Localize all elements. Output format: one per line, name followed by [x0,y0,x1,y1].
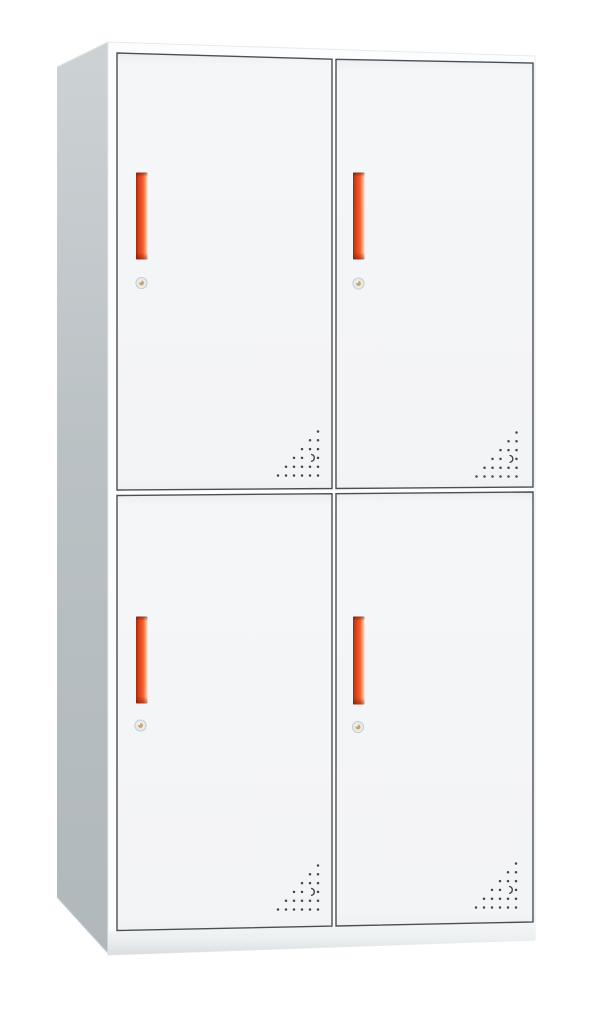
vent-dot [285,908,288,911]
vent-dot [301,899,304,902]
vent-dot [515,862,518,865]
vent-dot [507,475,510,478]
product-image [0,0,605,1009]
vent-dot [483,475,486,478]
vent-dot [507,897,510,900]
vent-dot [317,899,320,902]
vent-dot [309,882,312,885]
vent-dot [515,449,518,452]
vent-dot [499,880,502,883]
vent-dot [317,873,320,876]
vent-dot [317,474,320,477]
vent-dot [277,474,280,477]
vent-dot [507,449,510,452]
vent-dot [317,457,320,460]
vent-dot [515,871,518,874]
vent-dot [491,906,494,909]
vent-dot [483,466,486,469]
vent-dot [491,889,494,892]
vent-dot [499,906,502,909]
vent-dot [507,906,510,909]
vent-dot [309,439,312,442]
door-lower-left [117,494,332,931]
vent-dot [475,475,478,478]
keyhole-upper-left [136,277,147,288]
vent-dot [515,475,518,478]
vent-dot [507,440,510,443]
vent-dot [317,465,320,468]
keyhole-upper-right [353,278,364,289]
vent-dot [515,431,518,434]
vent-dot [293,474,296,477]
keyhole-lower-right [352,721,363,732]
vent-dot [293,899,296,902]
vent-dot [293,891,296,894]
vent-dot [301,457,304,460]
vent-dot [499,897,502,900]
vent-dot [301,465,304,468]
vent-dot [309,908,312,911]
handle-upper-left [136,173,148,260]
vent-dot [515,458,518,461]
handle-upper-right [353,173,365,260]
vent-dot [507,466,510,469]
vent-dot [499,458,502,461]
vent-dot [285,899,288,902]
vent-dot [309,448,312,451]
vent-dot [499,449,502,452]
keyhole-lower-left [135,720,146,731]
vent-dot [317,882,320,885]
vent-dot [491,466,494,469]
vent-dot [293,457,296,460]
vent-dot [277,908,280,911]
vent-dot [499,889,502,892]
door-upper-left [117,53,332,490]
vent-dot [301,891,304,894]
vent-dot [309,474,312,477]
vent-dot [475,906,478,909]
vent-dot [499,475,502,478]
vent-dot [317,448,320,451]
vent-dot [483,906,486,909]
vent-dot [483,897,486,900]
vent-dot [491,458,494,461]
vent-dot [515,880,518,883]
vent-dot [317,439,320,442]
locker-cabinet-illustration [0,0,605,1009]
handle-lower-left [136,617,148,704]
vent-dot [293,908,296,911]
vent-dot [515,889,518,892]
vent-dot [507,880,510,883]
vent-dot [309,899,312,902]
vent-dot [285,465,288,468]
vent-dot [317,891,320,894]
vent-dot [301,908,304,911]
door-lower-right [336,492,533,926]
vent-dot [491,475,494,478]
vent-dot [301,448,304,451]
door-upper-right [336,59,533,488]
vent-dot [309,465,312,468]
vent-dot [293,465,296,468]
vent-dot [317,908,320,911]
vent-dot [301,474,304,477]
vent-dot [301,882,304,885]
handle-lower-right [353,617,365,705]
cabinet-side-panel [57,42,108,953]
vent-dot [309,873,312,876]
vent-dot [515,906,518,909]
vent-dot [285,474,288,477]
vent-dot [317,864,320,867]
vent-dot [317,430,320,433]
vent-dot [499,466,502,469]
vent-dot [515,897,518,900]
vent-dot [507,871,510,874]
vent-dot [515,466,518,469]
vent-dot [491,897,494,900]
vent-dot [515,440,518,443]
